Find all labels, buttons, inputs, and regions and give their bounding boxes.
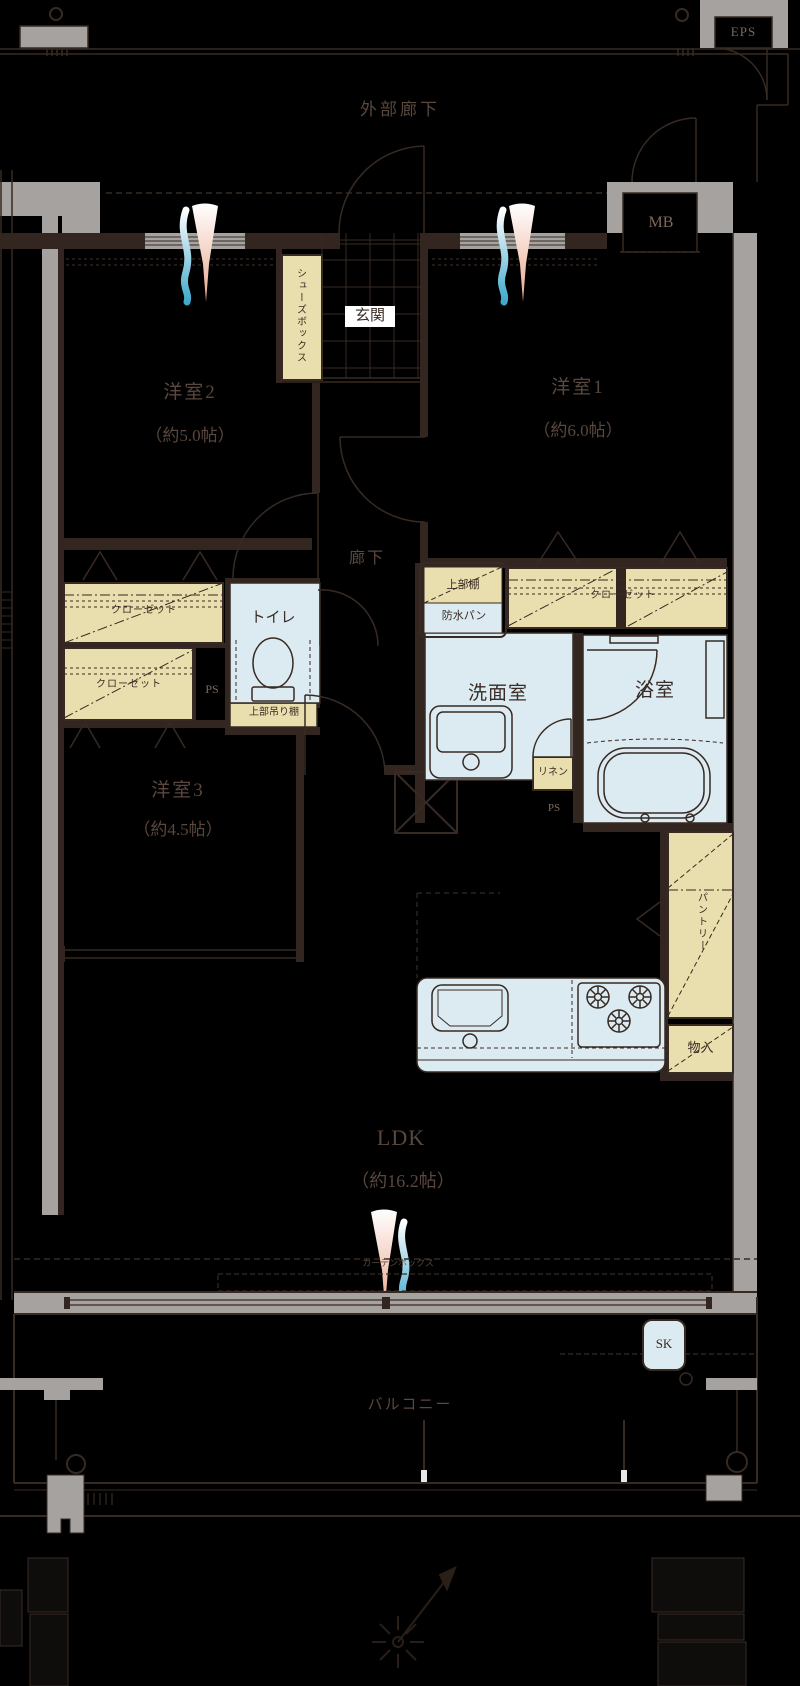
label-curtain-box: カーテンボックス [338, 1259, 458, 1268]
label-toilet-shelf: 上部吊り棚 [228, 708, 320, 719]
compass-north-arrow [372, 1568, 455, 1668]
label-storage-box: 物入 [670, 1041, 731, 1055]
label-pantry: パントリー [695, 892, 706, 952]
floor-plan-drawing [0, 0, 800, 1686]
exterior-corridor [0, 0, 800, 193]
label-room2-name: 洋室2 [130, 383, 250, 403]
label-entrance: 玄関 [345, 306, 395, 327]
duct-box [395, 772, 457, 833]
label-room3-name: 洋室3 [118, 781, 238, 801]
label-waterproof-pan: 防水パン [424, 611, 504, 623]
balcony-area [0, 1259, 800, 1533]
kitchen-fixture [417, 893, 665, 1072]
label-eps: EPS [715, 25, 772, 39]
floor-plan: 外部廊下 EPS MB 玄関 シューズボックス 洋室2 （約5.0帖） 洋室1 … [0, 0, 800, 1686]
label-upper-shelf: 上部棚 [428, 580, 498, 592]
label-ldk-name: LDK [341, 1126, 461, 1149]
bottom-structures [0, 1558, 746, 1686]
label-washroom: 洗面室 [438, 684, 558, 704]
room3-sliding-door [65, 950, 296, 958]
label-ps-left: PS [196, 683, 228, 696]
label-hallway: 廊下 [337, 551, 397, 568]
label-shoe-box: シューズボックス [294, 268, 305, 364]
label-balcony: バルコニー [350, 1398, 470, 1414]
label-closet-room2: クローゼット [84, 606, 204, 617]
label-closet-room1: クローゼット [553, 591, 693, 602]
label-toilet: トイレ [243, 611, 303, 627]
window-decoration-room2 [183, 204, 218, 303]
label-sk: SK [643, 1337, 685, 1351]
label-closet-room3: クローゼット [69, 680, 189, 691]
label-ps-right: PS [540, 803, 568, 815]
label-exterior-corridor: 外部廊下 [340, 101, 460, 119]
label-room1-size: （約6.0帖） [508, 422, 648, 440]
label-room3-size: （約4.5帖） [108, 821, 248, 839]
label-ldk-size: （約16.2帖） [323, 1172, 483, 1191]
window-decoration-room1 [500, 204, 535, 303]
label-mb: MB [630, 215, 692, 232]
label-room1-name: 洋室1 [518, 378, 638, 398]
label-room2-size: （約5.0帖） [120, 427, 260, 445]
label-bathroom: 浴室 [605, 681, 705, 701]
label-linen: リネン [528, 768, 578, 779]
